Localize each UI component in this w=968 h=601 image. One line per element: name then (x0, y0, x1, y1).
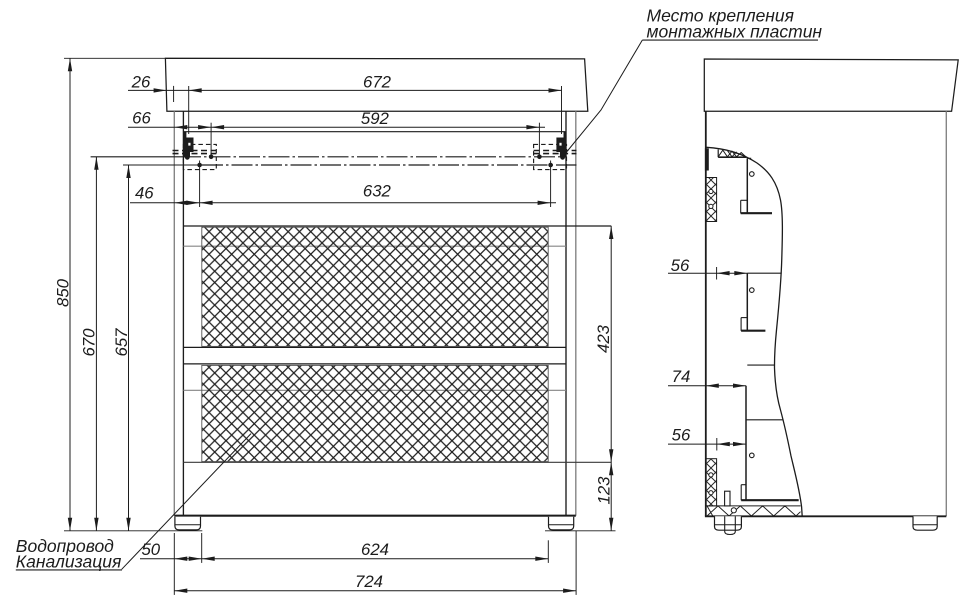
svg-text:56: 56 (672, 426, 691, 445)
svg-text:123: 123 (594, 476, 613, 505)
svg-text:850: 850 (53, 278, 72, 307)
svg-text:монтажных пластин: монтажных пластин (647, 22, 823, 42)
svg-text:423: 423 (594, 324, 613, 353)
svg-text:56: 56 (671, 256, 690, 275)
svg-text:66: 66 (132, 108, 151, 127)
svg-text:74: 74 (672, 367, 691, 386)
svg-text:670: 670 (80, 328, 99, 357)
svg-text:26: 26 (131, 72, 151, 91)
svg-text:50: 50 (141, 540, 160, 559)
svg-text:624: 624 (361, 540, 389, 559)
svg-text:672: 672 (363, 72, 392, 91)
svg-text:592: 592 (361, 109, 390, 128)
svg-text:724: 724 (355, 572, 383, 591)
svg-text:632: 632 (363, 182, 392, 201)
svg-text:Канализация: Канализация (16, 552, 122, 572)
svg-text:657: 657 (112, 328, 131, 357)
svg-text:46: 46 (135, 184, 154, 203)
